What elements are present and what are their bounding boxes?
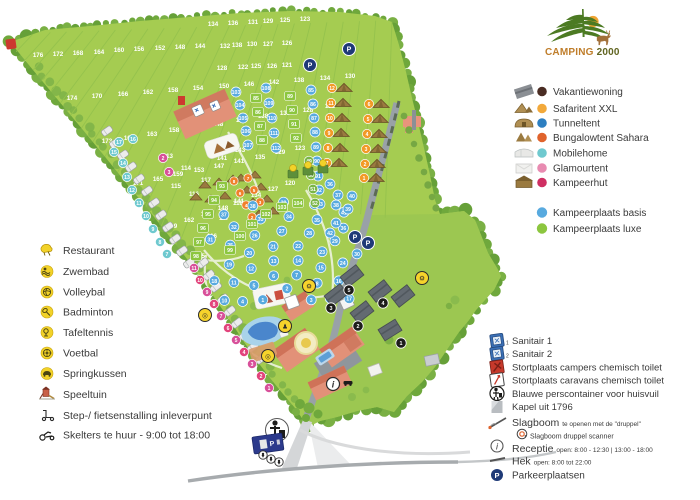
- svg-text:26: 26: [252, 233, 258, 239]
- svg-text:8: 8: [233, 179, 236, 184]
- svg-text:5: 5: [348, 288, 351, 294]
- svg-text:106: 106: [242, 129, 251, 135]
- svg-text:Stortplaats caravans chemisch: Stortplaats caravans chemisch toilet: [512, 376, 664, 387]
- svg-text:166: 166: [118, 91, 129, 98]
- svg-text:114: 114: [181, 165, 192, 172]
- svg-text:100: 100: [236, 234, 245, 240]
- svg-text:125: 125: [280, 17, 291, 24]
- svg-text:85: 85: [253, 96, 259, 102]
- svg-text:2: 2: [260, 374, 263, 380]
- svg-text:102: 102: [262, 212, 271, 218]
- svg-text:4: 4: [245, 203, 248, 208]
- svg-text:141: 141: [234, 158, 245, 165]
- svg-text:123: 123: [300, 16, 311, 23]
- svg-text:94: 94: [211, 198, 217, 204]
- svg-text:Sanitair 2: Sanitair 2: [512, 349, 552, 360]
- svg-text:136: 136: [228, 20, 239, 27]
- svg-text:37: 37: [221, 213, 227, 219]
- svg-text:⚙: ⚙: [306, 282, 312, 290]
- svg-text:17: 17: [116, 140, 122, 146]
- svg-text:152: 152: [155, 45, 166, 52]
- svg-text:32: 32: [231, 225, 237, 231]
- svg-text:12: 12: [129, 188, 135, 194]
- svg-text:148: 148: [175, 44, 186, 51]
- svg-text:Sanitair 1: Sanitair 1: [512, 336, 552, 347]
- svg-text:Step-/ fietsenstalling inlever: Step-/ fietsenstalling inleverpunt: [63, 410, 212, 422]
- svg-text:41: 41: [333, 221, 339, 227]
- svg-text:2: 2: [364, 162, 367, 168]
- svg-text:96: 96: [200, 226, 206, 232]
- svg-text:5: 5: [367, 117, 370, 123]
- svg-text:159: 159: [173, 171, 184, 178]
- svg-text:P: P: [353, 235, 358, 242]
- svg-text:88: 88: [259, 138, 265, 144]
- svg-text:P: P: [347, 47, 352, 54]
- svg-text:Glamourtent: Glamourtent: [553, 164, 608, 175]
- svg-text:4: 4: [382, 301, 385, 307]
- svg-text:35: 35: [314, 218, 320, 224]
- svg-text:107: 107: [244, 143, 253, 149]
- svg-text:8: 8: [213, 302, 216, 308]
- svg-text:36: 36: [327, 182, 333, 188]
- svg-text:98: 98: [193, 254, 199, 260]
- svg-text:2: 2: [286, 287, 289, 293]
- svg-text:8: 8: [159, 240, 162, 246]
- svg-text:85: 85: [308, 88, 314, 94]
- svg-text:17: 17: [346, 297, 352, 303]
- svg-text:97: 97: [196, 240, 202, 246]
- svg-text:129: 129: [263, 18, 274, 25]
- svg-text:Stortplaats campers chemisch t: Stortplaats campers chemisch toilet: [512, 363, 662, 374]
- svg-text:89: 89: [313, 145, 319, 151]
- svg-text:11: 11: [136, 201, 142, 207]
- svg-text:147: 147: [214, 163, 225, 170]
- svg-text:7: 7: [295, 273, 298, 279]
- svg-text:172: 172: [53, 51, 64, 58]
- svg-text:109: 109: [265, 101, 274, 107]
- svg-text:138: 138: [294, 77, 305, 84]
- svg-text:162: 162: [184, 217, 195, 224]
- svg-text:164: 164: [94, 49, 105, 56]
- svg-text:13: 13: [271, 259, 277, 265]
- svg-text:Kampeerhut: Kampeerhut: [553, 178, 608, 189]
- svg-text:12: 12: [248, 267, 254, 273]
- svg-text:Vakantiewoning: Vakantiewoning: [553, 87, 623, 98]
- svg-text:9: 9: [328, 131, 331, 137]
- svg-text:154: 154: [193, 85, 204, 92]
- svg-text:174: 174: [67, 95, 78, 102]
- svg-text:103: 103: [278, 205, 287, 211]
- svg-text:13: 13: [124, 175, 130, 181]
- svg-text:21: 21: [270, 245, 276, 251]
- svg-text:Kampeerplaats luxe: Kampeerplaats luxe: [553, 224, 642, 235]
- svg-text:90: 90: [314, 159, 320, 165]
- svg-text:5: 5: [253, 188, 256, 193]
- svg-text:126: 126: [282, 40, 293, 47]
- svg-text:4: 4: [241, 300, 244, 306]
- svg-text:122: 122: [238, 64, 249, 71]
- svg-text:Volleybal: Volleybal: [63, 287, 105, 299]
- svg-text:5: 5: [252, 284, 255, 290]
- svg-text:38: 38: [333, 203, 339, 209]
- svg-text:Zwembad: Zwembad: [63, 266, 109, 278]
- svg-text:Kampeerplaats basis: Kampeerplaats basis: [553, 208, 646, 219]
- svg-text:38: 38: [250, 204, 256, 210]
- svg-text:93: 93: [219, 184, 225, 190]
- svg-text:3: 3: [365, 147, 368, 153]
- svg-text:12: 12: [329, 86, 335, 92]
- svg-text:23: 23: [319, 250, 325, 256]
- svg-text:7: 7: [220, 314, 223, 320]
- svg-text:108: 108: [262, 86, 271, 92]
- svg-text:2: 2: [506, 354, 509, 360]
- svg-text:Badminton: Badminton: [63, 307, 113, 319]
- svg-text:10: 10: [197, 278, 203, 284]
- svg-text:138: 138: [232, 42, 243, 49]
- svg-text:◎: ◎: [265, 353, 271, 360]
- svg-text:168: 168: [73, 50, 84, 57]
- svg-text:1: 1: [400, 341, 403, 347]
- svg-text:⚙: ⚙: [419, 274, 425, 282]
- svg-text:Parkeerplaatsen: Parkeerplaatsen: [512, 471, 585, 482]
- svg-text:99: 99: [227, 248, 233, 254]
- svg-text:158: 158: [169, 127, 180, 134]
- svg-text:88: 88: [312, 130, 318, 136]
- svg-text:103: 103: [232, 90, 241, 96]
- svg-text:Springkussen: Springkussen: [63, 368, 127, 380]
- svg-text:11: 11: [328, 101, 334, 107]
- svg-text:2: 2: [357, 324, 360, 330]
- svg-text:127: 127: [268, 186, 279, 193]
- svg-text:7: 7: [247, 176, 250, 181]
- svg-text:42: 42: [327, 231, 333, 237]
- svg-text:4: 4: [366, 132, 369, 138]
- svg-text:91: 91: [291, 122, 297, 128]
- svg-text:89: 89: [287, 94, 293, 100]
- svg-text:127: 127: [263, 41, 274, 48]
- svg-text:19: 19: [226, 263, 232, 269]
- svg-text:146: 146: [244, 81, 255, 88]
- svg-text:51: 51: [310, 187, 316, 193]
- svg-text:Speeltuin: Speeltuin: [63, 389, 107, 401]
- svg-text:34: 34: [286, 215, 292, 221]
- svg-text:111: 111: [270, 131, 278, 137]
- svg-text:CAMPING 2000: CAMPING 2000: [545, 47, 620, 58]
- svg-text:132: 132: [220, 43, 231, 50]
- svg-text:112: 112: [272, 146, 280, 152]
- svg-text:8: 8: [327, 146, 330, 152]
- svg-text:◎: ◎: [202, 312, 208, 319]
- svg-text:29: 29: [332, 239, 338, 245]
- svg-text:3: 3: [251, 362, 254, 368]
- svg-text:104: 104: [294, 201, 303, 207]
- svg-text:121: 121: [282, 62, 293, 69]
- svg-text:176: 176: [33, 52, 44, 59]
- svg-text:Tunneltent: Tunneltent: [553, 119, 600, 130]
- svg-text:Blauwe perscontainer voor huis: Blauwe perscontainer voor huisvuil: [512, 389, 659, 400]
- svg-text:1: 1: [363, 176, 366, 182]
- svg-text:10: 10: [222, 299, 228, 305]
- svg-text:Kapel uit 1796: Kapel uit 1796: [512, 402, 573, 413]
- svg-text:153: 153: [194, 167, 205, 174]
- svg-text:101: 101: [248, 222, 257, 228]
- svg-text:150: 150: [219, 83, 230, 90]
- svg-text:24: 24: [340, 261, 346, 267]
- svg-text:15: 15: [318, 266, 324, 272]
- svg-text:86: 86: [310, 102, 316, 108]
- svg-text:163: 163: [147, 131, 158, 138]
- svg-text:158: 158: [168, 87, 179, 94]
- svg-text:125: 125: [251, 63, 262, 70]
- svg-text:160: 160: [114, 47, 125, 54]
- svg-text:16: 16: [130, 137, 136, 143]
- svg-text:Bungalowtent Sahara: Bungalowtent Sahara: [553, 133, 649, 144]
- svg-text:95: 95: [205, 212, 211, 218]
- svg-text:6: 6: [272, 274, 275, 280]
- svg-text:37: 37: [335, 193, 341, 199]
- svg-text:135: 135: [255, 154, 266, 161]
- svg-text:♟: ♟: [282, 322, 288, 330]
- svg-text:1: 1: [506, 341, 509, 347]
- svg-text:39: 39: [345, 207, 351, 213]
- svg-text:87: 87: [311, 116, 317, 122]
- svg-text:120: 120: [285, 180, 296, 187]
- svg-text:134: 134: [208, 21, 219, 28]
- svg-text:105: 105: [239, 116, 248, 122]
- svg-text:28: 28: [306, 231, 312, 237]
- svg-text:11: 11: [231, 281, 237, 287]
- svg-text:123: 123: [295, 145, 306, 152]
- svg-text:P: P: [308, 63, 313, 70]
- svg-text:126: 126: [267, 63, 278, 70]
- svg-text:115: 115: [171, 183, 182, 190]
- svg-text:3: 3: [168, 170, 171, 176]
- svg-text:3: 3: [310, 298, 313, 304]
- svg-text:Mobilehome: Mobilehome: [553, 149, 608, 160]
- svg-text:Restaurant: Restaurant: [63, 245, 114, 257]
- svg-text:27: 27: [279, 229, 285, 235]
- svg-text:87: 87: [257, 124, 263, 130]
- svg-text:128: 128: [217, 65, 228, 72]
- svg-text:31: 31: [207, 237, 213, 243]
- svg-text:9: 9: [206, 290, 209, 296]
- svg-text:52: 52: [312, 201, 318, 207]
- svg-text:130: 130: [247, 41, 258, 48]
- svg-text:30: 30: [354, 252, 360, 258]
- svg-text:40: 40: [349, 194, 355, 200]
- svg-text:142: 142: [269, 79, 280, 86]
- svg-text:15: 15: [111, 150, 117, 156]
- svg-text:104: 104: [236, 103, 245, 109]
- svg-text:4: 4: [243, 350, 246, 356]
- svg-text:14: 14: [295, 259, 301, 265]
- svg-text:3: 3: [330, 306, 333, 312]
- svg-text:6: 6: [239, 191, 242, 196]
- svg-text:6: 6: [227, 326, 230, 332]
- svg-text:3: 3: [259, 200, 262, 205]
- svg-text:86: 86: [255, 110, 261, 116]
- svg-text:7: 7: [166, 252, 169, 258]
- svg-text:P: P: [494, 471, 499, 480]
- svg-text:1: 1: [261, 298, 264, 304]
- svg-text:2: 2: [251, 215, 254, 220]
- svg-text:8: 8: [316, 281, 319, 287]
- svg-text:130: 130: [345, 73, 356, 80]
- svg-text:6: 6: [368, 102, 371, 108]
- svg-text:10: 10: [143, 214, 149, 220]
- svg-text:110: 110: [268, 116, 276, 122]
- svg-text:Tafeltennis: Tafeltennis: [63, 327, 113, 339]
- svg-text:18: 18: [211, 279, 217, 285]
- svg-text:162: 162: [143, 89, 154, 96]
- svg-text:9: 9: [152, 227, 155, 233]
- svg-text:11: 11: [191, 266, 197, 272]
- svg-text:131: 131: [248, 19, 259, 26]
- svg-text:170: 170: [92, 93, 103, 100]
- svg-text:14: 14: [120, 161, 126, 167]
- svg-text:20: 20: [246, 251, 252, 257]
- svg-text:134: 134: [320, 75, 331, 82]
- svg-text:P: P: [366, 241, 371, 248]
- svg-text:Safaritent XXL: Safaritent XXL: [553, 104, 618, 115]
- svg-text:165: 165: [153, 176, 164, 183]
- svg-text:144: 144: [195, 43, 206, 50]
- svg-text:Voetbal: Voetbal: [63, 348, 98, 360]
- svg-text:Slagboom druppel scanner: Slagboom druppel scanner: [530, 434, 614, 441]
- svg-text:10: 10: [327, 116, 333, 122]
- svg-text:5: 5: [235, 338, 238, 344]
- svg-text:2: 2: [162, 156, 165, 162]
- svg-text:90: 90: [289, 108, 295, 114]
- svg-text:1: 1: [268, 386, 271, 392]
- svg-text:Skelters te huur - 9:00 tot 18: Skelters te huur - 9:00 tot 18:00: [63, 430, 210, 442]
- svg-text:22: 22: [295, 244, 301, 250]
- svg-text:92: 92: [293, 136, 299, 142]
- svg-text:36: 36: [341, 226, 347, 232]
- svg-text:156: 156: [134, 46, 145, 53]
